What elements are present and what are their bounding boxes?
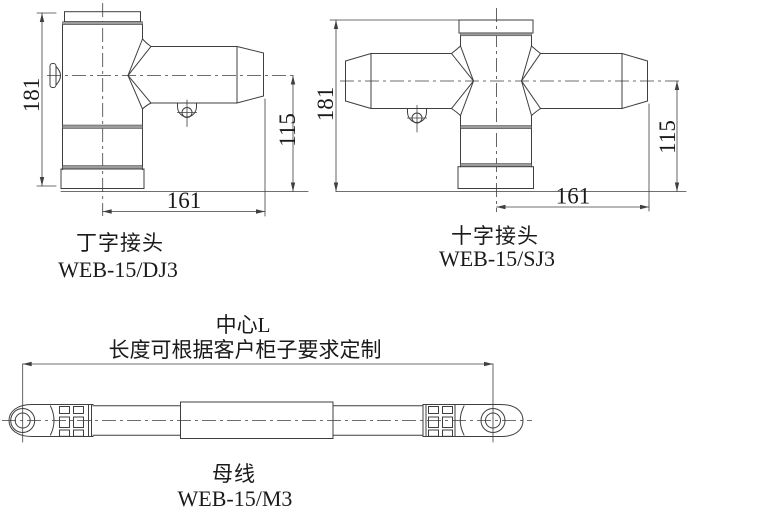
- cross-bottom-cap: [458, 167, 534, 189]
- busbar-drawing: 中心L 长度可根据客户柜子要求定制 母线 WEB-15/M3: [2, 313, 532, 511]
- tee-center-height-value: 115: [275, 113, 300, 147]
- cross-joint-drawing: 181 115 161 十字接头 WEB-15/SJ3: [313, 8, 686, 271]
- arrowhead: [334, 183, 338, 192]
- tee-centerlines: [47, 3, 296, 216]
- cross-dimension-height: 181: [313, 20, 459, 192]
- tee-arm-cone: [237, 47, 264, 54]
- busbar-right-contact-grid: [429, 407, 453, 437]
- cross-grounding-screw-detail: [408, 106, 427, 133]
- cross-center-height-value: 115: [655, 120, 680, 154]
- cross-length-value: 161: [556, 184, 591, 209]
- tee-dimension-center-height: 115: [61, 76, 308, 192]
- tee-title: 丁字接头: [76, 231, 164, 255]
- cross-height-value: 181: [313, 87, 338, 122]
- tee-joint-drawing: 181 115 161 丁字接头 WEB-15/DJ3: [19, 3, 308, 282]
- cross-centerlines: [340, 8, 680, 212]
- cross-right-cone: [622, 54, 648, 62]
- tee-height-value: 181: [19, 78, 44, 113]
- cross-caption: 十字接头 WEB-15/SJ3: [439, 224, 555, 271]
- arrowhead: [291, 76, 295, 85]
- cross-body: [458, 20, 534, 189]
- arrowhead: [497, 205, 506, 209]
- arrowhead: [40, 13, 44, 22]
- arrowhead: [103, 209, 112, 213]
- drawing-sheet: 181 115 161 丁字接头 WEB-15/DJ3: [0, 0, 783, 523]
- busbar-dimension-length: 中心L 长度可根据客户柜子要求定制: [23, 313, 493, 442]
- arrowhead: [675, 81, 679, 90]
- cross-top-band: [461, 33, 532, 36]
- arrowhead: [291, 183, 295, 192]
- cross-model: WEB-15/SJ3: [439, 246, 555, 271]
- tee-grounding-screw-detail: [178, 100, 197, 127]
- tee-arm: [151, 47, 264, 104]
- arrowhead: [675, 183, 679, 192]
- busbar-title: 母线: [212, 462, 256, 486]
- arrowhead: [23, 362, 32, 366]
- arrowhead: [640, 205, 649, 209]
- tee-arm-junction: [128, 39, 151, 109]
- tee-body: [50, 12, 144, 189]
- cross-top-cap: [459, 20, 533, 33]
- busbar-model: WEB-15/M3: [178, 486, 293, 511]
- tee-dimension-height: 181: [19, 13, 56, 186]
- busbar-left-contact-grid: [60, 407, 84, 437]
- cross-dimension-center-height: 115: [336, 81, 686, 192]
- arrowhead: [256, 209, 265, 213]
- busbar-caption: 母线 WEB-15/M3: [178, 462, 293, 511]
- tee-model: WEB-15/DJ3: [58, 257, 178, 282]
- cross-dimension-length: 161: [497, 104, 650, 211]
- arrowhead: [40, 177, 44, 186]
- busbar-length-note-line1: 中心L: [216, 313, 271, 337]
- cross-left-cone: [346, 54, 372, 62]
- tee-top-band: [63, 22, 143, 25]
- tee-length-value: 161: [167, 188, 202, 213]
- arrowhead: [484, 362, 493, 366]
- cross-middle-band: [461, 126, 532, 129]
- tee-caption: 丁字接头 WEB-15/DJ3: [58, 231, 178, 282]
- tee-lower-band: [63, 166, 143, 170]
- cross-title: 十字接头: [451, 224, 539, 248]
- tee-middle-band: [63, 125, 143, 129]
- busbar-length-note-line2: 长度可根据客户柜子要求定制: [109, 338, 382, 362]
- technical-drawing-page: 181 115 161 丁字接头 WEB-15/DJ3: [0, 0, 783, 523]
- arrowhead: [334, 20, 338, 29]
